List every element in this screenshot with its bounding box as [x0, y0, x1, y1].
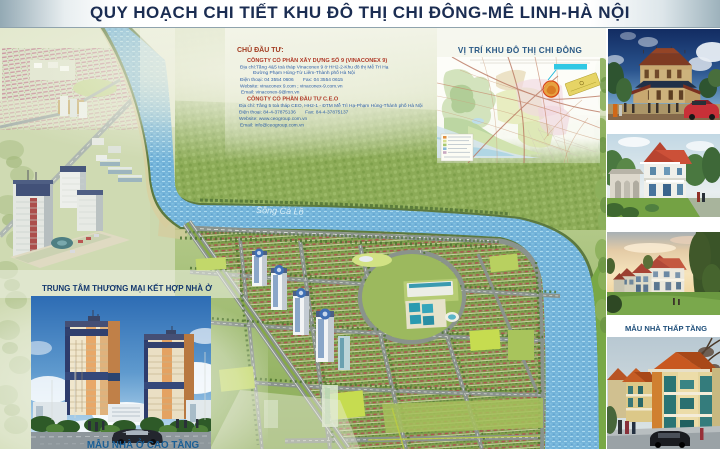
svg-text:Điện thoại: 84-4-37875136: Điện thoại: 84-4-37875136 Fax: 84-4-3787… — [239, 110, 349, 116]
svg-text:Điện thoại: 04 3554 0606: Điện thoại: 04 3554 0606 Fax: 04 3554 06… — [240, 77, 343, 83]
svg-text:Email: vinaconex-9@mn.vn: Email: vinaconex-9@mn.vn — [241, 90, 300, 96]
svg-text:VỊ TRÍ KHU ĐÔ THỊ CHI ĐÔNG: VỊ TRÍ KHU ĐÔ THỊ CHI ĐÔNG — [458, 44, 582, 55]
svg-text:CÔNGTY CỔ PHẦN ĐẦU TƯ C.E.O: CÔNGTY CỔ PHẦN ĐẦU TƯ C.E.O — [247, 95, 339, 103]
svg-text:Website: vinaconex 9.com ; vin: Website: vinaconex 9.com ; vinaconex-9.c… — [240, 84, 343, 90]
svg-text:Website: www.ceogroup.com.vn: Website: www.ceogroup.com.vn — [239, 116, 307, 122]
svg-text:MẪU NHÀ THẤP TẦNG: MẪU NHÀ THẤP TẦNG — [625, 323, 707, 333]
svg-text:Địa chỉ:Tầng 4&5 toà tháp Vina: Địa chỉ:Tầng 4&5 toà tháp Vinaconex 9 ở … — [240, 64, 389, 71]
svg-text:TRUNG TÂM THƯƠNG MẠI KẾT HỢP N: TRUNG TÂM THƯƠNG MẠI KẾT HỢP NHÀ Ở — [42, 283, 212, 293]
svg-text:CÔNGTY CỔ PHẦN XÂY DỰNG SỐ 9 (: CÔNGTY CỔ PHẦN XÂY DỰNG SỐ 9 (VINACONEX … — [247, 56, 387, 64]
svg-text:CHỦ ĐẦU TƯ:: CHỦ ĐẦU TƯ: — [237, 44, 284, 54]
svg-text:MẪU NHÀ Ở CAO TẦNG: MẪU NHÀ Ở CAO TẦNG — [87, 439, 200, 449]
svg-text:Đường Phạm Hùng-Từ Liêm-Thành: Đường Phạm Hùng-Từ Liêm-Thành phố Hà Nội — [253, 70, 355, 76]
svg-text:Email: info@ceogroup.com.vn: Email: info@ceogroup.com.vn — [240, 123, 304, 129]
svg-text:Địa chỉ: Tầng 5 toà tháp CEO,: Địa chỉ: Tầng 5 toà tháp CEO, HH2-1 - ĐT… — [239, 102, 423, 109]
